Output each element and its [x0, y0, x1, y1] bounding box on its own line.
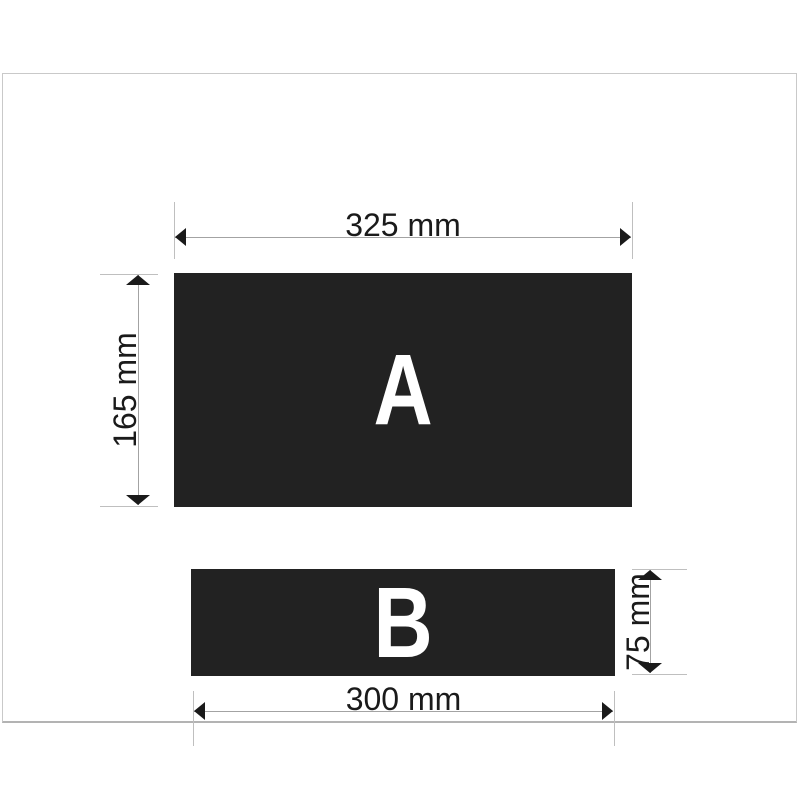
panel-b: B — [191, 569, 615, 676]
diagram-page: A B 325 mm 165 mm 75 mm 300 mm — [0, 0, 800, 800]
panel-a-width-label: 325 mm — [174, 209, 632, 241]
panel-a-letter: A — [373, 340, 432, 440]
panel-a-height-label: 165 mm — [109, 270, 141, 510]
panel-b-letter: B — [373, 573, 432, 673]
drawing-frame: A B 325 mm 165 mm 75 mm 300 mm — [2, 73, 797, 723]
panel-b-width-extension-line-right — [614, 691, 615, 746]
panel-b-width-label: 300 mm — [193, 683, 614, 715]
panel-b-height-label: 75 mm — [622, 537, 654, 707]
panel-a: A — [174, 273, 632, 507]
panel-a-width-extension-line-right — [632, 202, 633, 259]
